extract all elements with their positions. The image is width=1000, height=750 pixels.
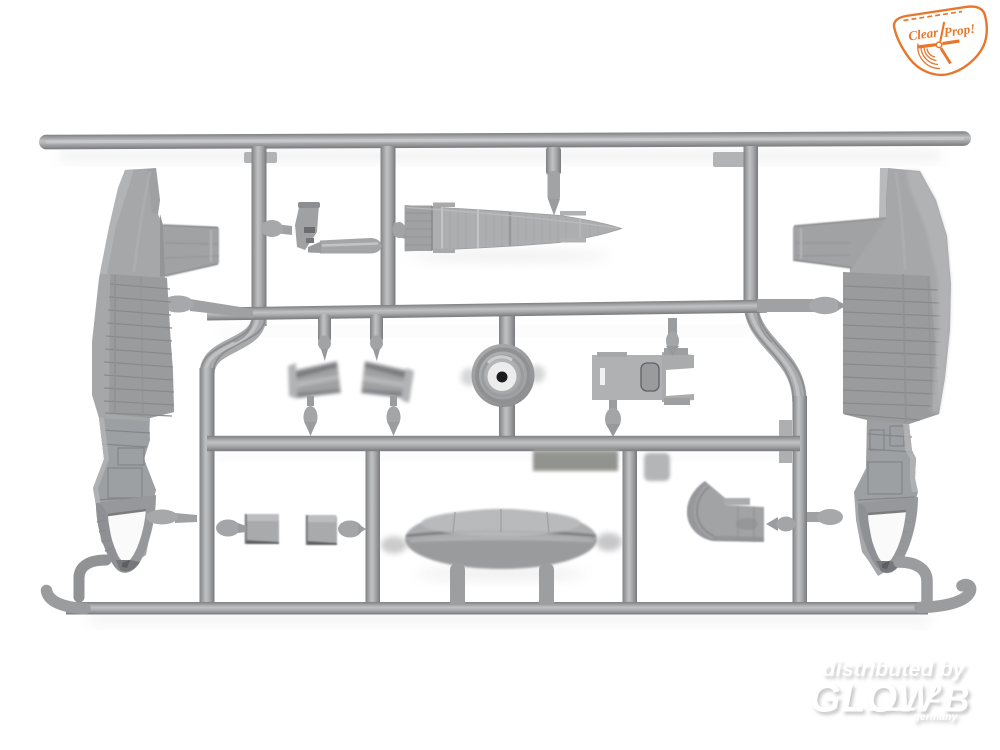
svg-text:germany: germany <box>913 711 959 723</box>
svg-text:2: 2 <box>926 679 942 709</box>
